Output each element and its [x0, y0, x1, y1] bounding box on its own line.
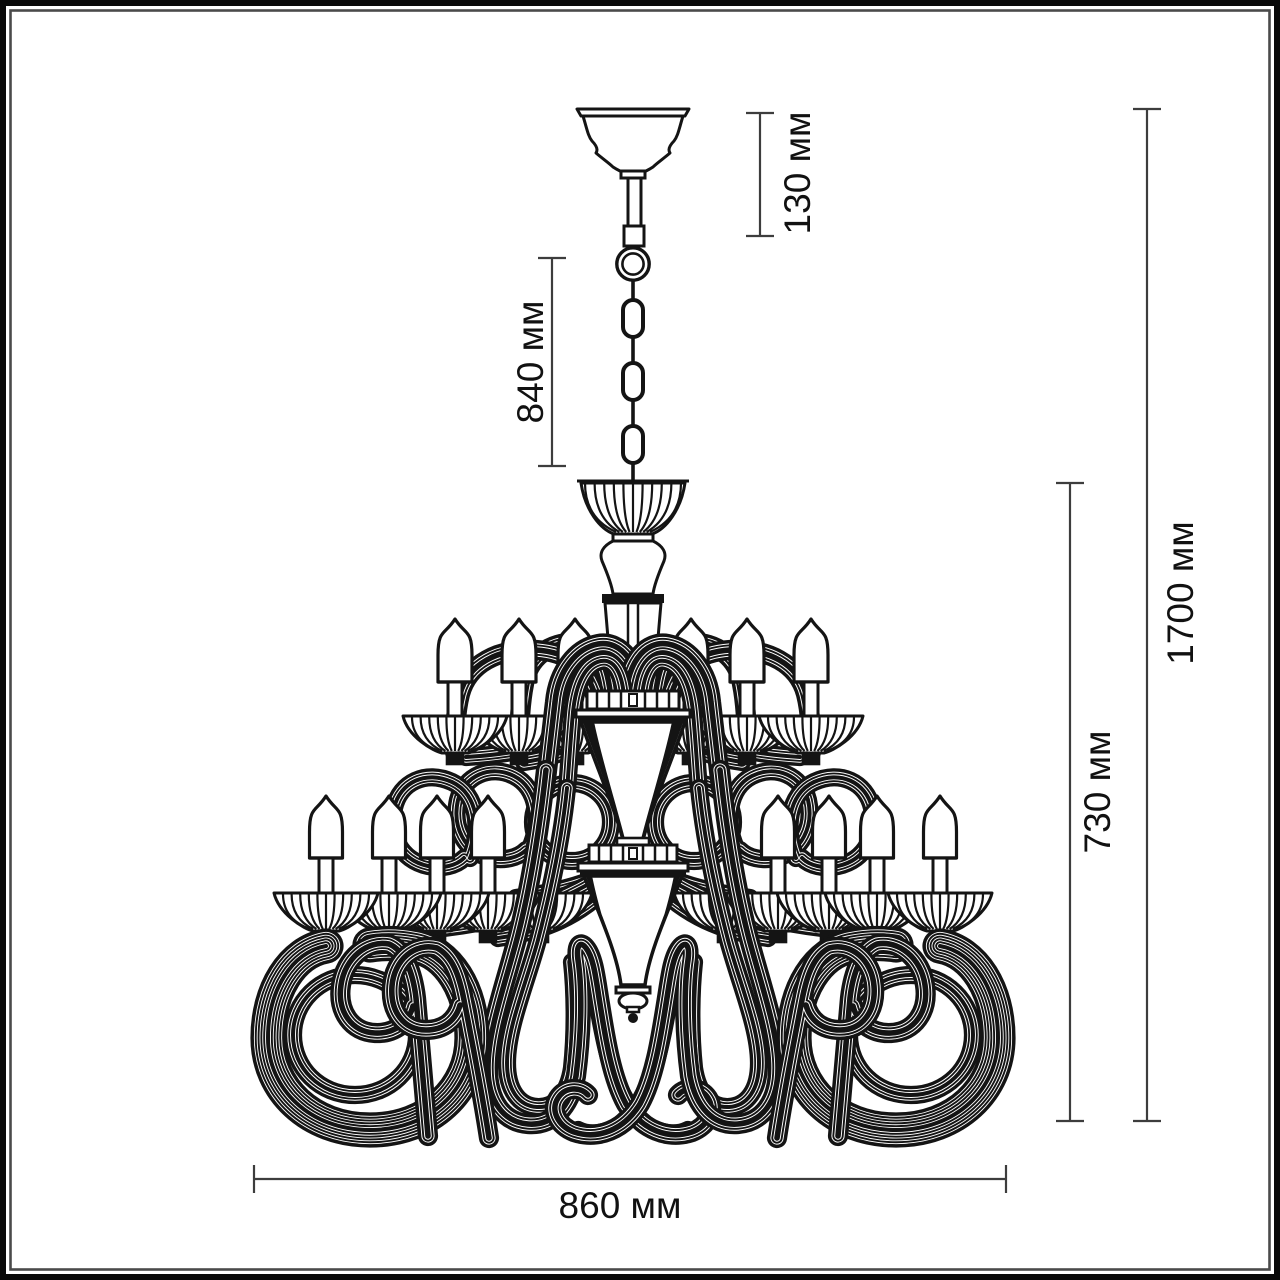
- svg-text:860 мм: 860 мм: [559, 1185, 682, 1226]
- svg-text:130 мм: 130 мм: [777, 112, 818, 235]
- svg-text:730 мм: 730 мм: [1077, 731, 1118, 854]
- svg-text:1700 мм: 1700 мм: [1160, 521, 1201, 664]
- svg-text:840 мм: 840 мм: [510, 301, 551, 424]
